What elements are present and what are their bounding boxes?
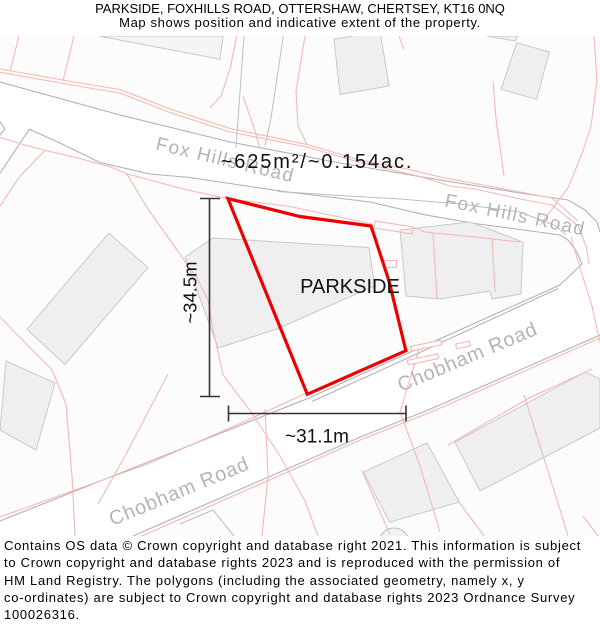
svg-text:~31.1m: ~31.1m (285, 427, 349, 448)
svg-text:~625m²/~0.154ac.: ~625m²/~0.154ac. (221, 151, 414, 173)
svg-text:~34.5m: ~34.5m (179, 261, 200, 323)
svg-text:PARKSIDE: PARKSIDE (300, 276, 400, 298)
